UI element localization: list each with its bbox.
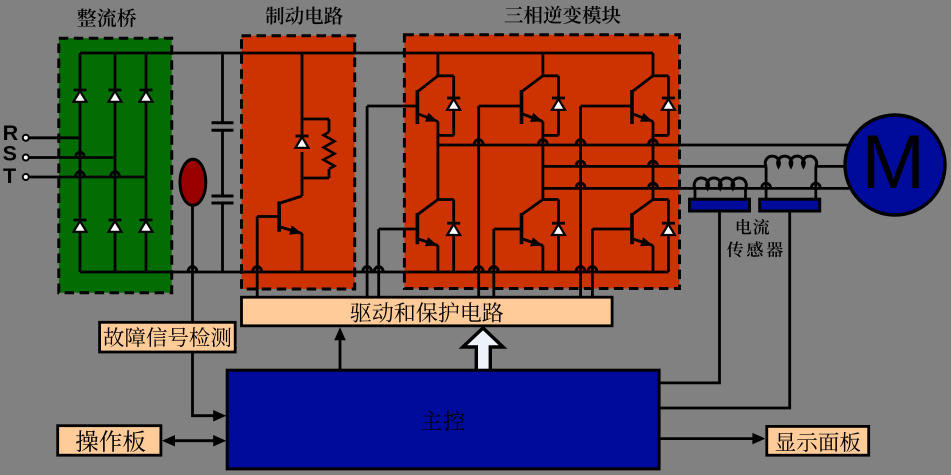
svg-text:T: T <box>3 164 16 188</box>
svg-text:M: M <box>862 120 925 205</box>
svg-text:S: S <box>3 141 17 165</box>
